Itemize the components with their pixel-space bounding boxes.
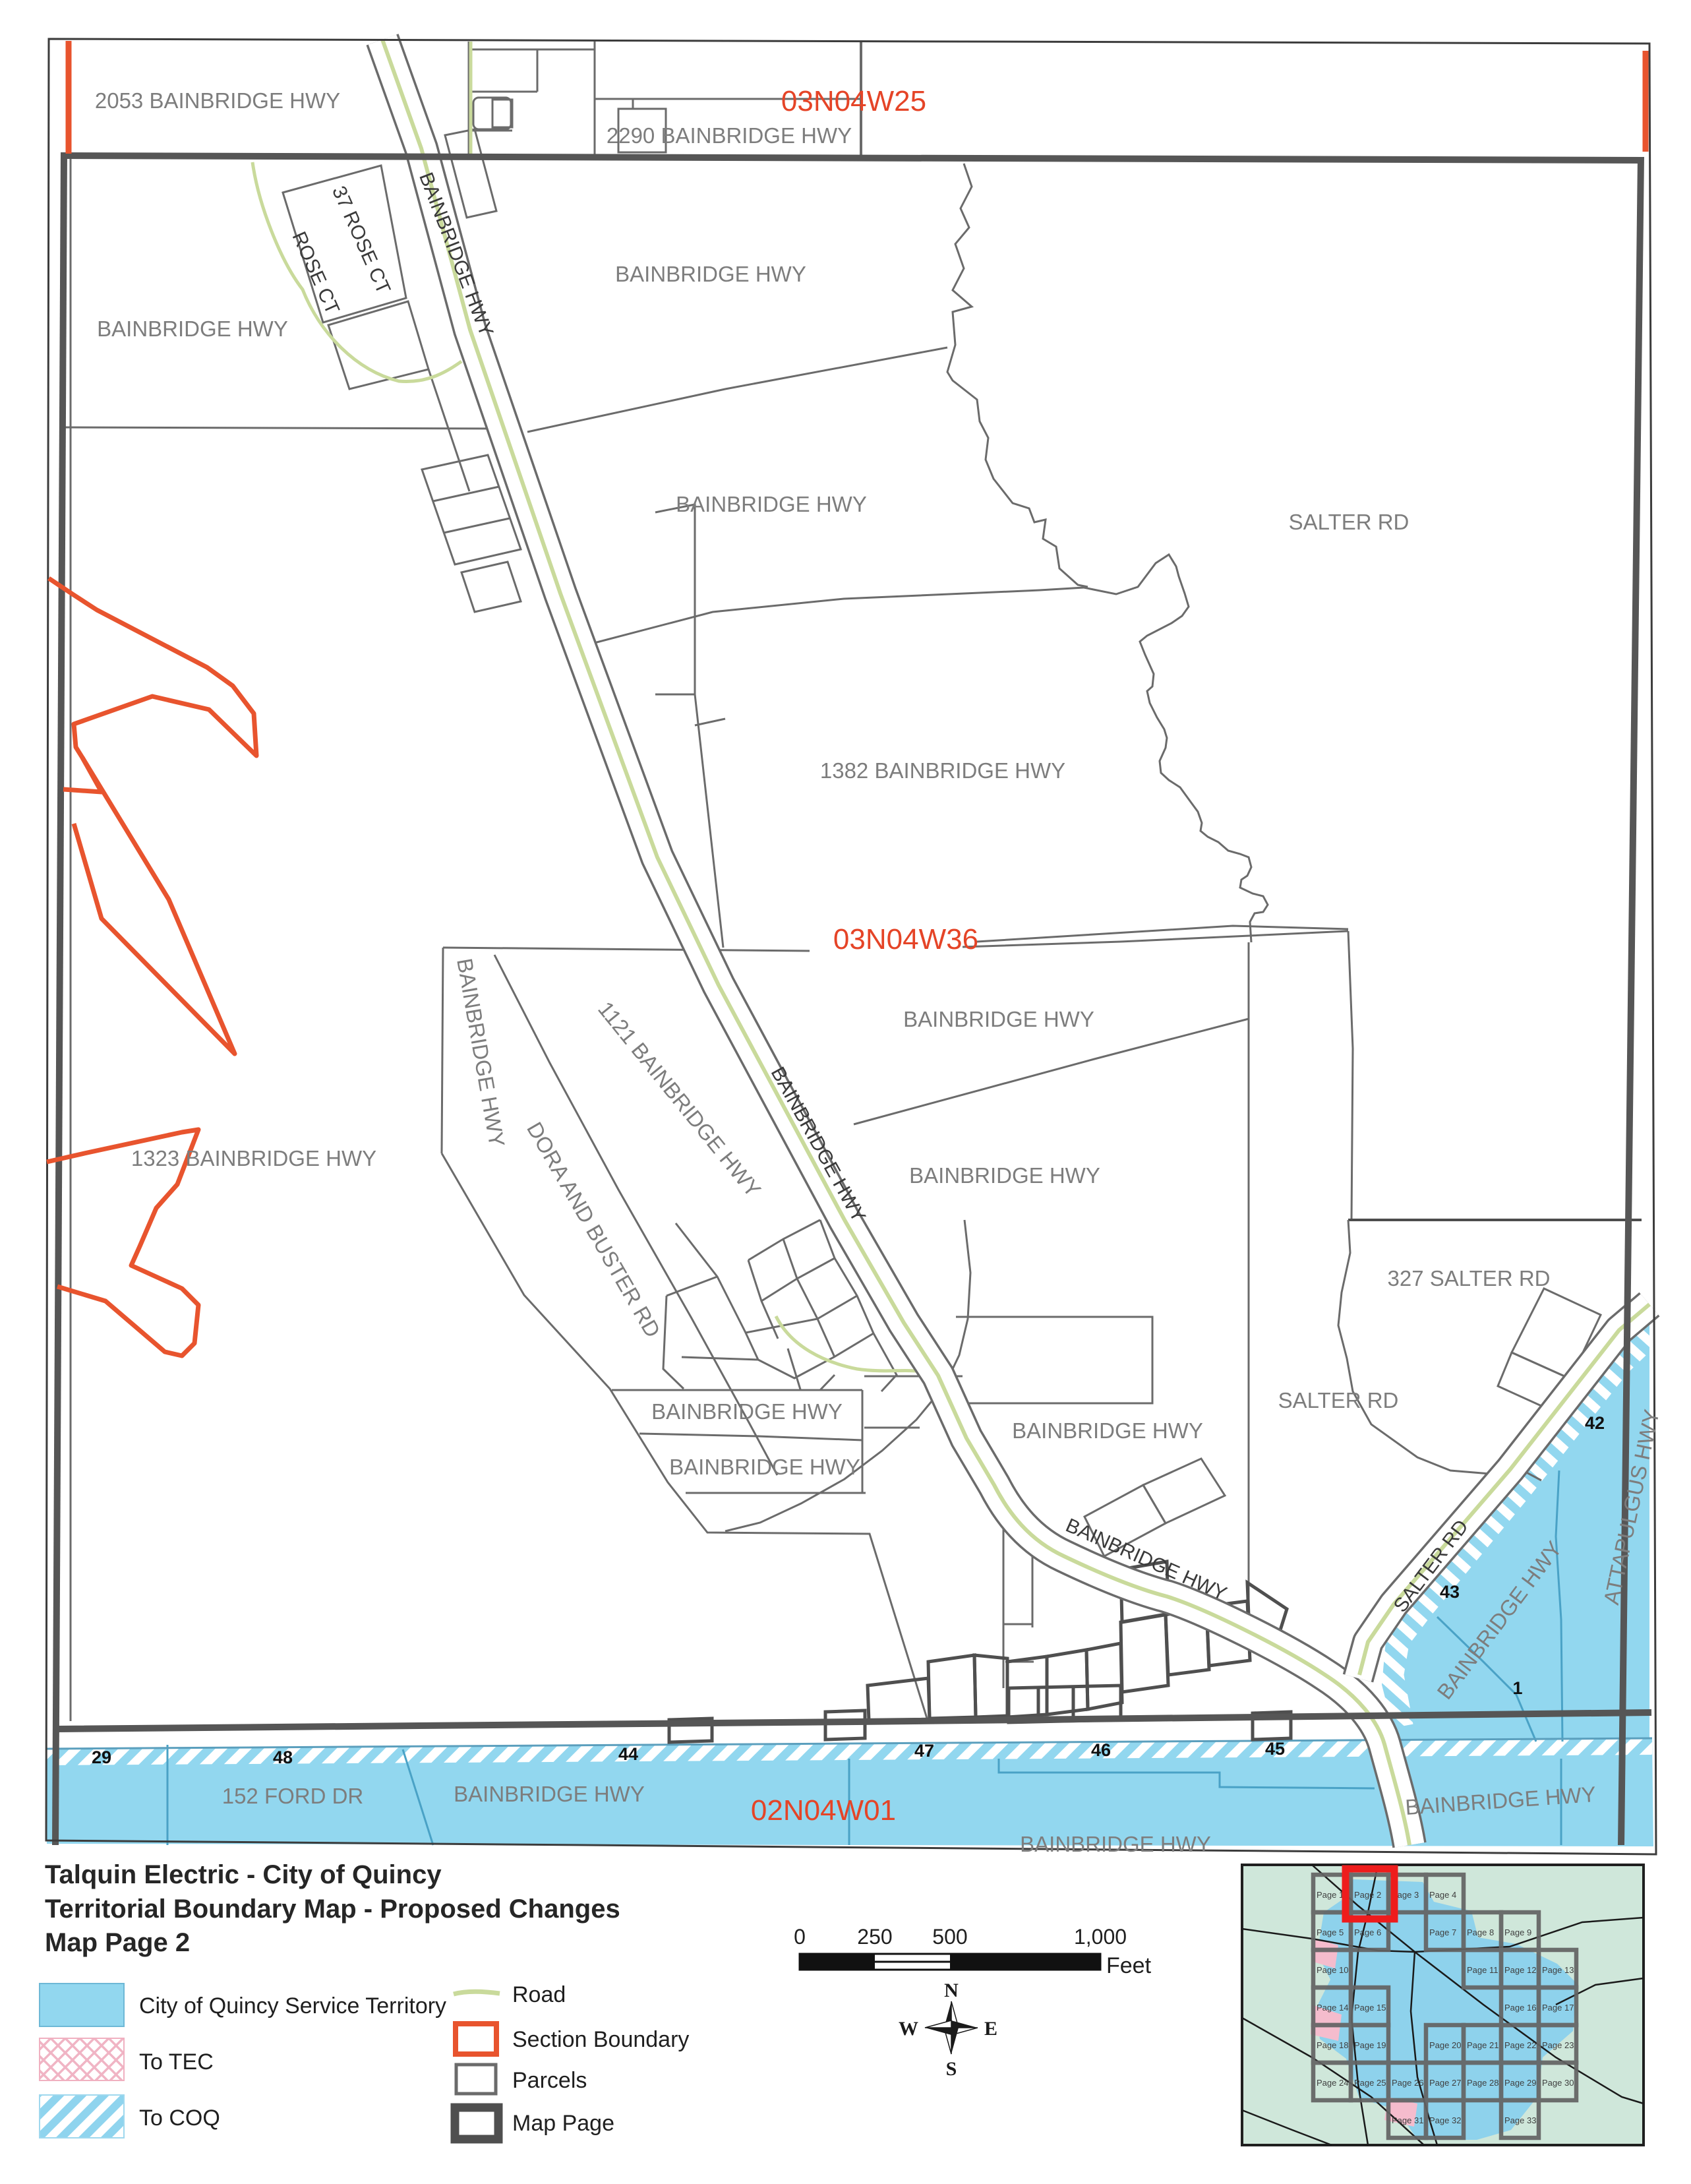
- svg-text:1323 BAINBRIDGE HWY: 1323 BAINBRIDGE HWY: [131, 1146, 376, 1170]
- svg-text:1382 BAINBRIDGE HWY: 1382 BAINBRIDGE HWY: [820, 758, 1065, 783]
- svg-text:Page 27: Page 27: [1429, 2078, 1461, 2088]
- svg-text:Page 33: Page 33: [1504, 2115, 1536, 2125]
- svg-text:Page 1: Page 1: [1317, 1890, 1344, 1900]
- svg-text:152 FORD DR: 152 FORD DR: [222, 1784, 364, 1808]
- svg-text:Map Page: Map Page: [512, 2111, 614, 2136]
- svg-text:Page 18: Page 18: [1317, 2040, 1348, 2050]
- svg-text:Page 19: Page 19: [1354, 2040, 1386, 2050]
- svg-text:To TEC: To TEC: [139, 2049, 214, 2075]
- svg-text:Talquin Electric - City of Qui: Talquin Electric - City of Quincy: [45, 1860, 442, 1889]
- svg-text:Territorial Boundary Map - Pro: Territorial Boundary Map - Proposed Chan…: [45, 1895, 620, 1924]
- svg-text:Page 5: Page 5: [1317, 1927, 1344, 1937]
- svg-text:Page 21: Page 21: [1467, 2040, 1498, 2050]
- svg-text:E: E: [984, 2018, 997, 2040]
- svg-text:Page 10: Page 10: [1317, 1965, 1348, 1975]
- svg-text:Page 11: Page 11: [1467, 1965, 1498, 1975]
- svg-text:BAINBRIDGE HWY: BAINBRIDGE HWY: [903, 1007, 1094, 1031]
- svg-text:Page 13: Page 13: [1542, 1965, 1574, 1975]
- svg-text:BAINBRIDGE HWY: BAINBRIDGE HWY: [97, 317, 288, 341]
- svg-text:250: 250: [857, 1925, 892, 1949]
- svg-text:Feet: Feet: [1106, 1953, 1152, 1978]
- svg-text:BAINBRIDGE HWY: BAINBRIDGE HWY: [1020, 1832, 1211, 1856]
- svg-text:47: 47: [914, 1741, 934, 1761]
- svg-text:1: 1: [1512, 1678, 1522, 1698]
- svg-text:Map Page 2: Map Page 2: [45, 1928, 190, 1957]
- svg-text:2053 BAINBRIDGE HWY: 2053 BAINBRIDGE HWY: [95, 88, 340, 113]
- svg-text:BAINBRIDGE HWY: BAINBRIDGE HWY: [669, 1455, 860, 1479]
- svg-text:42: 42: [1585, 1413, 1605, 1433]
- svg-text:Page 29: Page 29: [1504, 2078, 1536, 2088]
- svg-text:Page 24: Page 24: [1317, 2078, 1348, 2088]
- svg-text:Road: Road: [512, 1982, 566, 2007]
- svg-text:2290 BAINBRIDGE HWY: 2290 BAINBRIDGE HWY: [607, 123, 852, 148]
- svg-text:BAINBRIDGE HWY: BAINBRIDGE HWY: [1012, 1418, 1203, 1443]
- svg-text:Page 20: Page 20: [1429, 2040, 1461, 2050]
- svg-text:City of Quincy Service Territo: City of Quincy Service Territory: [139, 1993, 446, 2018]
- svg-text:BAINBRIDGE HWY: BAINBRIDGE HWY: [651, 1399, 843, 1424]
- svg-text:1,000: 1,000: [1074, 1925, 1127, 1949]
- svg-text:Page 9: Page 9: [1504, 1927, 1531, 1937]
- svg-text:0: 0: [794, 1925, 806, 1949]
- svg-text:29: 29: [92, 1747, 111, 1767]
- svg-text:Page 15: Page 15: [1354, 2003, 1386, 2013]
- svg-text:Page 28: Page 28: [1467, 2078, 1498, 2088]
- svg-text:W: W: [899, 2018, 918, 2040]
- svg-text:Page 22: Page 22: [1504, 2040, 1536, 2050]
- svg-text:Page 7: Page 7: [1429, 1927, 1456, 1937]
- svg-text:S: S: [946, 2058, 957, 2080]
- svg-text:Page 14: Page 14: [1317, 2003, 1348, 2013]
- svg-text:02N04W01: 02N04W01: [751, 1794, 896, 1827]
- svg-text:Parcels: Parcels: [512, 2068, 587, 2093]
- svg-text:43: 43: [1440, 1582, 1460, 1602]
- svg-text:BAINBRIDGE HWY: BAINBRIDGE HWY: [909, 1163, 1100, 1188]
- svg-text:To COQ: To COQ: [139, 2106, 220, 2131]
- svg-text:Page 31: Page 31: [1392, 2115, 1423, 2125]
- svg-text:BAINBRIDGE HWY: BAINBRIDGE HWY: [615, 262, 806, 286]
- svg-text:44: 44: [618, 1744, 638, 1764]
- svg-text:Page 2: Page 2: [1354, 1890, 1381, 1900]
- svg-text:Section Boundary: Section Boundary: [512, 2027, 689, 2052]
- svg-text:Page 32: Page 32: [1429, 2115, 1461, 2125]
- svg-text:SALTER RD: SALTER RD: [1278, 1388, 1399, 1412]
- svg-text:03N04W36: 03N04W36: [833, 923, 978, 956]
- svg-text:Page 25: Page 25: [1354, 2078, 1386, 2088]
- svg-text:45: 45: [1265, 1739, 1285, 1759]
- svg-text:48: 48: [273, 1747, 293, 1767]
- svg-text:Page 12: Page 12: [1504, 1965, 1536, 1975]
- svg-text:03N04W25: 03N04W25: [781, 85, 926, 117]
- svg-text:Page 4: Page 4: [1429, 1890, 1456, 1900]
- svg-text:Page 23: Page 23: [1542, 2040, 1574, 2050]
- svg-text:Page 17: Page 17: [1542, 2003, 1574, 2013]
- svg-text:500: 500: [932, 1925, 967, 1949]
- svg-text:BAINBRIDGE HWY: BAINBRIDGE HWY: [454, 1782, 645, 1806]
- svg-text:Page 6: Page 6: [1354, 1927, 1381, 1937]
- svg-text:N: N: [944, 1980, 959, 2001]
- svg-text:BAINBRIDGE HWY: BAINBRIDGE HWY: [676, 492, 867, 516]
- svg-text:46: 46: [1091, 1740, 1111, 1760]
- svg-text:327 SALTER RD: 327 SALTER RD: [1388, 1266, 1551, 1290]
- svg-text:Page 26: Page 26: [1392, 2078, 1423, 2088]
- svg-text:Page 8: Page 8: [1467, 1927, 1494, 1937]
- svg-text:SALTER RD: SALTER RD: [1289, 510, 1409, 534]
- svg-text:Page 30: Page 30: [1542, 2078, 1574, 2088]
- svg-text:Page 16: Page 16: [1504, 2003, 1536, 2013]
